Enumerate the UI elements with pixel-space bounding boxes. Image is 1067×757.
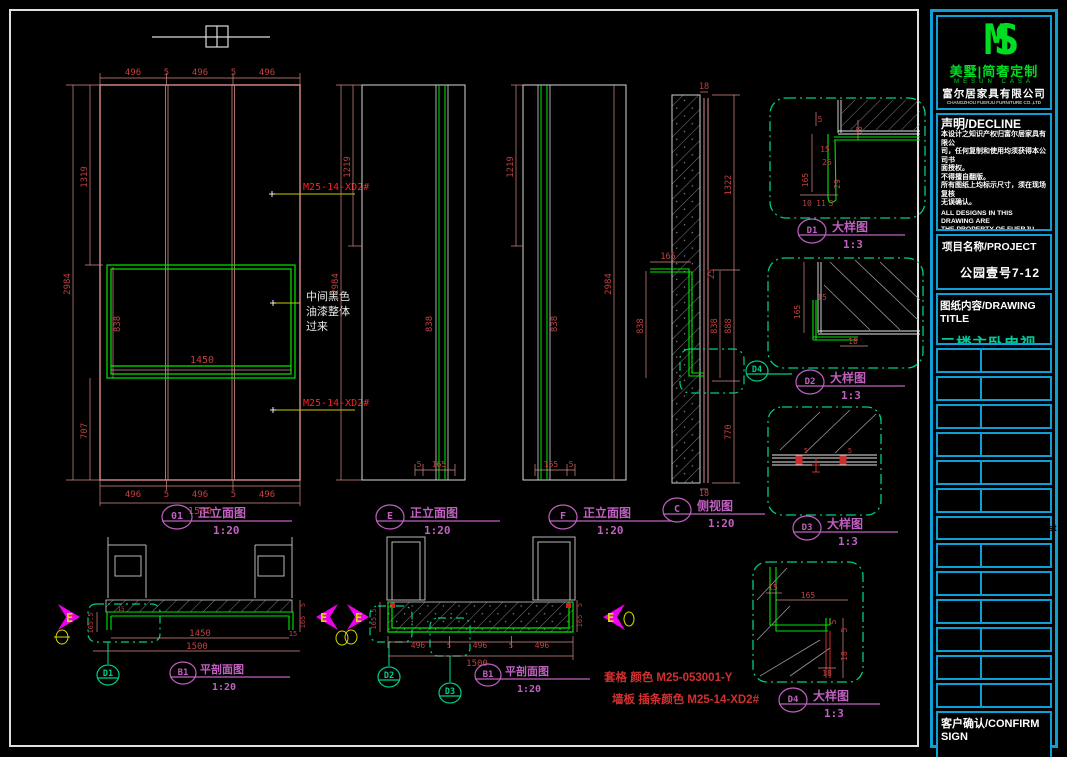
dim: 18 <box>699 82 709 92</box>
declaration-en: ALL DESIGNS IN THIS DRAWING ARE THE PROP… <box>941 210 1047 232</box>
dim: 1500 <box>186 642 208 652</box>
view-title-f: F 正立面图 1:20 <box>549 505 672 537</box>
dim: 5 <box>840 627 849 632</box>
view-title: 平剖面图 <box>200 662 244 676</box>
row-value <box>982 573 1050 594</box>
section-marker-right: E <box>603 604 634 630</box>
row-value <box>982 601 1050 622</box>
view-tag: B1 <box>483 670 494 680</box>
dim: 5 <box>299 603 307 607</box>
dim: 15 <box>768 583 778 592</box>
view-scale: 1:20 <box>424 524 451 537</box>
dim: 25 <box>707 269 717 279</box>
dim: 496 <box>192 490 208 500</box>
view-detail-d2: 165 15 18 D2 大样图 1:3 <box>768 258 923 402</box>
info-row-designed: 设 计Designed <box>936 348 1052 373</box>
view-title-planr: B1 平剖面图 1:20 <box>475 664 590 695</box>
section-marker-left: E <box>345 604 369 644</box>
dim: 165 <box>544 460 559 469</box>
drawing-title-value: 二楼主卧电视背景墙 <box>940 332 1048 345</box>
view-title-c: C 侧视图 1:20 <box>663 498 765 530</box>
finish-note-1: 套格 颜色 M25-053001-Y <box>604 670 733 684</box>
row-value <box>982 629 1050 650</box>
dim: 15 <box>820 145 830 154</box>
dim: 770 <box>724 424 734 439</box>
view-plan-right: D2 D3 496 5 496 5 496 1500 165.5 5 165 E <box>345 537 634 703</box>
dim: 5 <box>509 642 513 650</box>
dim: 496 <box>535 641 550 650</box>
dim: 5 <box>848 447 852 455</box>
section-marker-left: E <box>54 604 80 644</box>
row-value <box>982 462 1050 483</box>
dim: 165 <box>660 252 675 262</box>
view-title: 大样图 <box>830 370 866 385</box>
dim: 496 <box>192 68 208 78</box>
note-line: 中间黑色 <box>306 289 350 303</box>
view-title: 大样图 <box>813 688 849 703</box>
dim: 5 <box>231 68 236 78</box>
dim: 5 <box>231 490 236 500</box>
view-elevation-01: 496 5 496 5 496 1319 2984 838 707 1450 4… <box>63 68 369 537</box>
dim: 165 <box>801 173 810 188</box>
drawing-title-box: 图纸内容/DRAWING TITLE 二楼主卧电视背景墙 <box>936 293 1052 345</box>
dim: 5 <box>569 460 574 469</box>
view-elevation-e: 1219 2984 838 5 165 E 正立面图 1:20 <box>331 85 500 537</box>
dim: 165.5 <box>370 608 378 629</box>
company-name-en: CHANGZHOU FUERJU FURNITURE CO.,LTD <box>944 100 1045 105</box>
dim: 838 <box>636 318 646 333</box>
view-scale: 1:3 <box>843 238 863 251</box>
row-value <box>982 545 1050 566</box>
row-value <box>982 406 1050 427</box>
dim: 496 <box>259 490 275 500</box>
declaration-en-line: THE PROPERTY OF FUERJU FURNITURE <box>941 226 1047 231</box>
view-tag: D2 <box>805 377 816 387</box>
view-plan-left: D1 165.5 15 1450 1500 15 5 165 E E <box>54 537 348 693</box>
view-title: 大样图 <box>827 516 863 531</box>
info-row-auditing: 核 定Auditing <box>936 404 1052 429</box>
dim: 888 <box>724 318 734 333</box>
section-letter: E <box>320 611 327 625</box>
dim: 5 <box>417 460 422 469</box>
declaration-cn-line: 本设计之知识产权归富尔居家具有限公 <box>941 131 1047 148</box>
callout-tag: D2 <box>384 671 394 681</box>
view-title: 正立面图 <box>410 505 458 520</box>
dim: 1450 <box>190 355 214 366</box>
material-list-title: 材质清单/The Material List <box>936 516 1052 540</box>
material-row-metal: 金 属Metal <box>936 683 1052 708</box>
material-row-plate: 板 材Plate <box>936 571 1052 596</box>
dim: 496 <box>125 490 141 500</box>
dim: 496 <box>411 641 426 650</box>
dim: 25 <box>822 158 832 167</box>
dim: 496 <box>125 68 141 78</box>
view-title-d2: D2 大样图 1:3 <box>796 370 905 402</box>
view-title-d1: D1 大样图 1:3 <box>798 219 905 251</box>
declaration-cn: 本设计之知识产权归富尔居家具有限公 司，任何复制和使用均须获得本公司书 面授权。… <box>941 131 1047 208</box>
view-title: 大样图 <box>832 219 868 234</box>
dim: 838 <box>710 318 720 333</box>
callout-tag: D3 <box>445 687 455 697</box>
dim: 165 <box>801 591 816 600</box>
company-name-cn: 富尔居家具有限公司 <box>938 88 1050 100</box>
customer-confirm-box: 客户确认/CONFIRM SIGN <box>936 711 1052 757</box>
dim: 15 <box>289 630 297 638</box>
dim: 18 <box>855 126 864 136</box>
declaration-cn-line: 司，任何复制和使用均须获得本公司书 <box>941 148 1047 165</box>
callout-tag: D4 <box>752 365 762 375</box>
declaration-cn-line: 面授权。 <box>941 165 1047 174</box>
dim: 10 <box>802 199 812 208</box>
dim: 5 <box>804 447 808 455</box>
cad-sheet: 496 5 496 5 496 1319 2984 838 707 1450 4… <box>0 0 1067 757</box>
dim: 1219 <box>506 156 516 178</box>
view-tag: D3 <box>802 523 813 533</box>
material-rows: 木 皮Wood 板 材Plate 实 木Solid Wood 布 料Cloth … <box>936 543 1052 708</box>
row-value <box>982 378 1050 399</box>
section-letter: E <box>355 611 362 625</box>
material-row-cloth: 布 料Cloth <box>936 627 1052 652</box>
dim: 1450 <box>189 629 211 639</box>
view-title: 正立面图 <box>583 505 631 520</box>
brand-name-cn: 美墅|简奢定制 <box>938 65 1050 79</box>
dim: 2984 <box>63 273 73 295</box>
dim: 18 <box>840 651 849 661</box>
callout-tag: D1 <box>103 669 113 679</box>
material-row-paint: 油 漆Paint <box>936 655 1052 680</box>
dim: 496 <box>473 641 488 650</box>
declaration-cn-line: 无误确认。 <box>941 199 1047 208</box>
dim: 2984 <box>331 273 341 295</box>
brand-name-en: MESUN CASA <box>938 79 1050 86</box>
declaration-cn-line: 不得擅自翻版。 <box>941 174 1047 183</box>
dim: 496 <box>259 68 275 78</box>
view-scale: 1:3 <box>824 707 844 720</box>
view-title-01: 01 正立面图 1:20 <box>162 505 292 537</box>
view-title-planl: B1 平剖面图 1:20 <box>170 662 290 693</box>
view-elevation-f: 1219 2984 838 165 5 F 正立面图 1:20 <box>506 85 672 537</box>
section-marker-right: E <box>316 604 348 645</box>
dim: 838 <box>550 316 560 332</box>
info-row-scale: 比 例Scale <box>936 460 1052 485</box>
dim: 5 <box>164 490 169 500</box>
declaration-box: 声明/DECLINE 本设计之知识产权归富尔居家具有限公 司，任何复制和使用均须… <box>936 113 1052 231</box>
logo-box: MS 美墅|简奢定制 MESUN CASA 富尔居家具有限公司 CHANGZHO… <box>936 15 1052 110</box>
mesun-logo-icon: MS <box>959 18 1029 60</box>
dim: 2984 <box>604 273 614 295</box>
project-label: 项目名称/PROJECT <box>942 239 1046 254</box>
declaration-cn-line: 所有图纸上均标示尺寸，须在现场复核 <box>941 182 1047 199</box>
project-value: 公园壹号7-12 <box>960 264 1046 281</box>
view-detail-d1: 5 165 15 25 29 18 10 11 3 D1 大样图 1:3 <box>770 98 925 251</box>
dim: 5 <box>576 603 584 607</box>
material-row-wood: 木 皮Wood <box>936 543 1052 568</box>
material-row-solidwood: 实 木Solid Wood <box>936 599 1052 624</box>
dim: 18 <box>848 337 858 346</box>
view-scale: 1:20 <box>708 517 735 530</box>
view-scale: 1:20 <box>212 682 236 693</box>
dim: 1319 <box>80 166 90 188</box>
dim: 5 <box>447 642 451 650</box>
view-scale: 1:20 <box>517 684 541 695</box>
dim: 165 <box>299 616 307 629</box>
project-box: 项目名称/PROJECT 公园壹号7-12 <box>936 234 1052 290</box>
finish-note-2: 墙板 插条颜色 M25-14-XD2# <box>612 692 760 706</box>
info-row-check: 复 核Check <box>936 376 1052 401</box>
dim: 15 <box>117 606 125 613</box>
declaration-title: 声明/DECLINE <box>941 117 1047 131</box>
view-tag: B1 <box>178 668 189 678</box>
view-title-d4: D4 大样图 1:3 <box>779 688 880 720</box>
view-scale: 1:20 <box>597 524 624 537</box>
confirm-label: 客户确认/CONFIRM SIGN <box>941 718 1039 743</box>
view-tag: F <box>560 511 566 522</box>
view-tag: C <box>674 504 680 515</box>
dim: 165.5 <box>87 612 95 633</box>
dim: 1219 <box>343 156 353 178</box>
row-value <box>982 350 1050 371</box>
dim: 1322 <box>724 175 734 195</box>
dim: 15 <box>817 293 827 302</box>
dim: 5 <box>829 619 838 624</box>
dim: 165 <box>432 460 447 469</box>
title-block: MS 美墅|简奢定制 MESUN CASA 富尔居家具有限公司 CHANGZHO… <box>930 9 1058 748</box>
top-break-symbol <box>152 26 270 47</box>
view-scale: 1:3 <box>838 535 858 548</box>
view-scale: 1:20 <box>213 524 240 537</box>
drawing-canvas: 496 5 496 5 496 1319 2984 838 707 1450 4… <box>0 0 928 757</box>
note-line: 油漆整体 <box>306 304 350 318</box>
dim: 838 <box>425 316 435 332</box>
row-value <box>982 685 1050 706</box>
view-title-d3: D3 大样图 1:3 <box>793 516 898 548</box>
dim: 838 <box>113 316 123 332</box>
dim: 165 <box>793 305 802 320</box>
view-title: 侧视图 <box>697 498 733 513</box>
dim: 3 <box>829 199 834 208</box>
view-detail-d3: 5 5 D3 大样图 1:3 <box>768 407 898 548</box>
dim: 11 <box>816 199 826 208</box>
dim: 29 <box>833 179 842 189</box>
section-letter: E <box>66 611 73 625</box>
view-title-e: E 正立面图 1:20 <box>376 505 500 537</box>
dim: 165 <box>576 615 584 628</box>
dim: 5 <box>818 115 823 124</box>
dim: 707 <box>80 423 90 439</box>
view-tag: E <box>387 511 393 522</box>
row-value <box>982 434 1050 455</box>
section-letter: E <box>607 611 614 625</box>
view-detail-d4: 15 165 5 5 18 18 D4 大样图 1:3 <box>753 562 880 720</box>
view-scale: 1:3 <box>841 389 861 402</box>
note-line: 过来 <box>306 320 328 333</box>
dim: 18 <box>699 489 709 499</box>
view-tag: D4 <box>788 695 799 705</box>
view-tag: 01 <box>171 511 183 522</box>
dim: 5 <box>164 68 169 78</box>
dim: 18 <box>822 669 832 678</box>
view-title: 正立面图 <box>198 505 246 520</box>
info-row-qty: 数 量QTY <box>936 432 1052 457</box>
finish-label: M25-14-XD2# <box>303 398 369 409</box>
row-value <box>982 490 1050 511</box>
info-rows: 设 计Designed 复 核Check 核 定Auditing 数 量QTY … <box>936 348 1052 513</box>
view-tag: D1 <box>807 226 818 236</box>
svg-text:MS: MS <box>984 18 1017 60</box>
declaration-en-line: ALL DESIGNS IN THIS DRAWING ARE <box>941 210 1047 226</box>
view-title: 平剖面图 <box>505 664 549 678</box>
drawing-title-label: 图纸内容/DRAWING TITLE <box>940 298 1048 325</box>
row-value <box>982 657 1050 678</box>
info-row-date: 日 期Date <box>936 488 1052 513</box>
finish-label: M25-14-XD2# <box>303 182 369 193</box>
